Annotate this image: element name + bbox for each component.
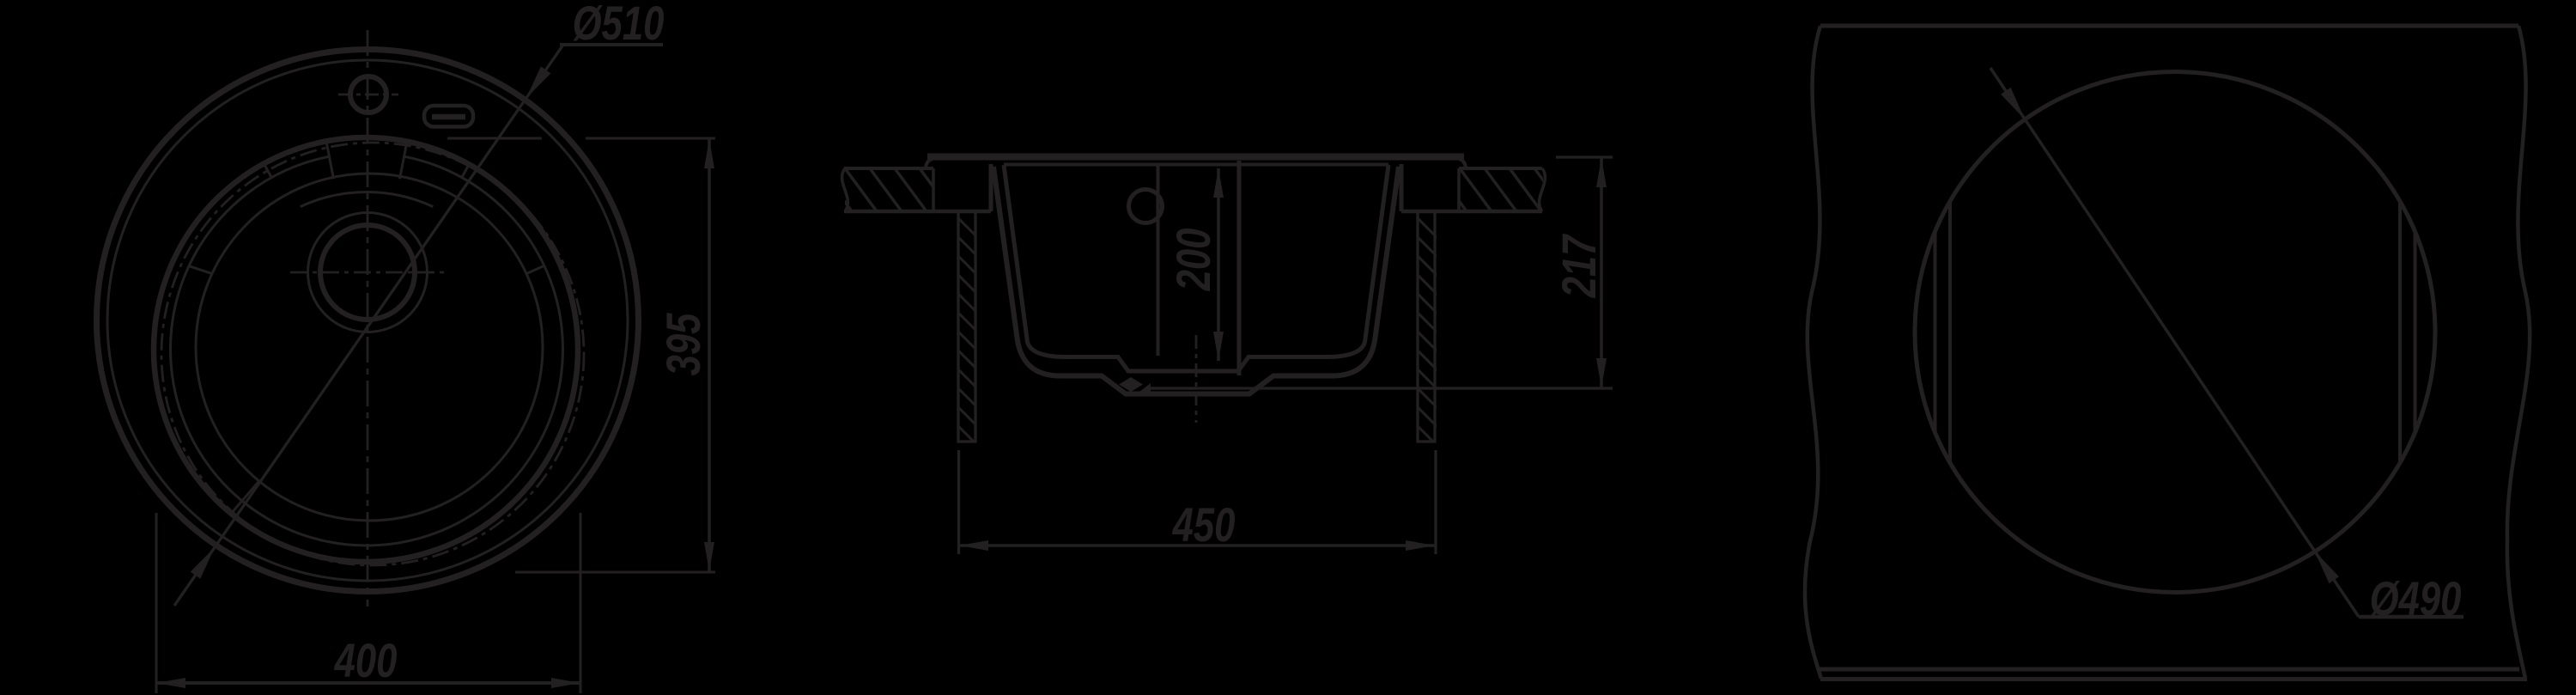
svg-text:450: 450 bbox=[1172, 498, 1236, 552]
svg-text:217: 217 bbox=[1552, 234, 1606, 299]
svg-text:400: 400 bbox=[334, 634, 398, 687]
svg-text:395: 395 bbox=[657, 313, 710, 376]
svg-text:Ø510: Ø510 bbox=[573, 0, 665, 50]
svg-text:200: 200 bbox=[1167, 229, 1220, 292]
svg-text:Ø490: Ø490 bbox=[2370, 572, 2462, 625]
